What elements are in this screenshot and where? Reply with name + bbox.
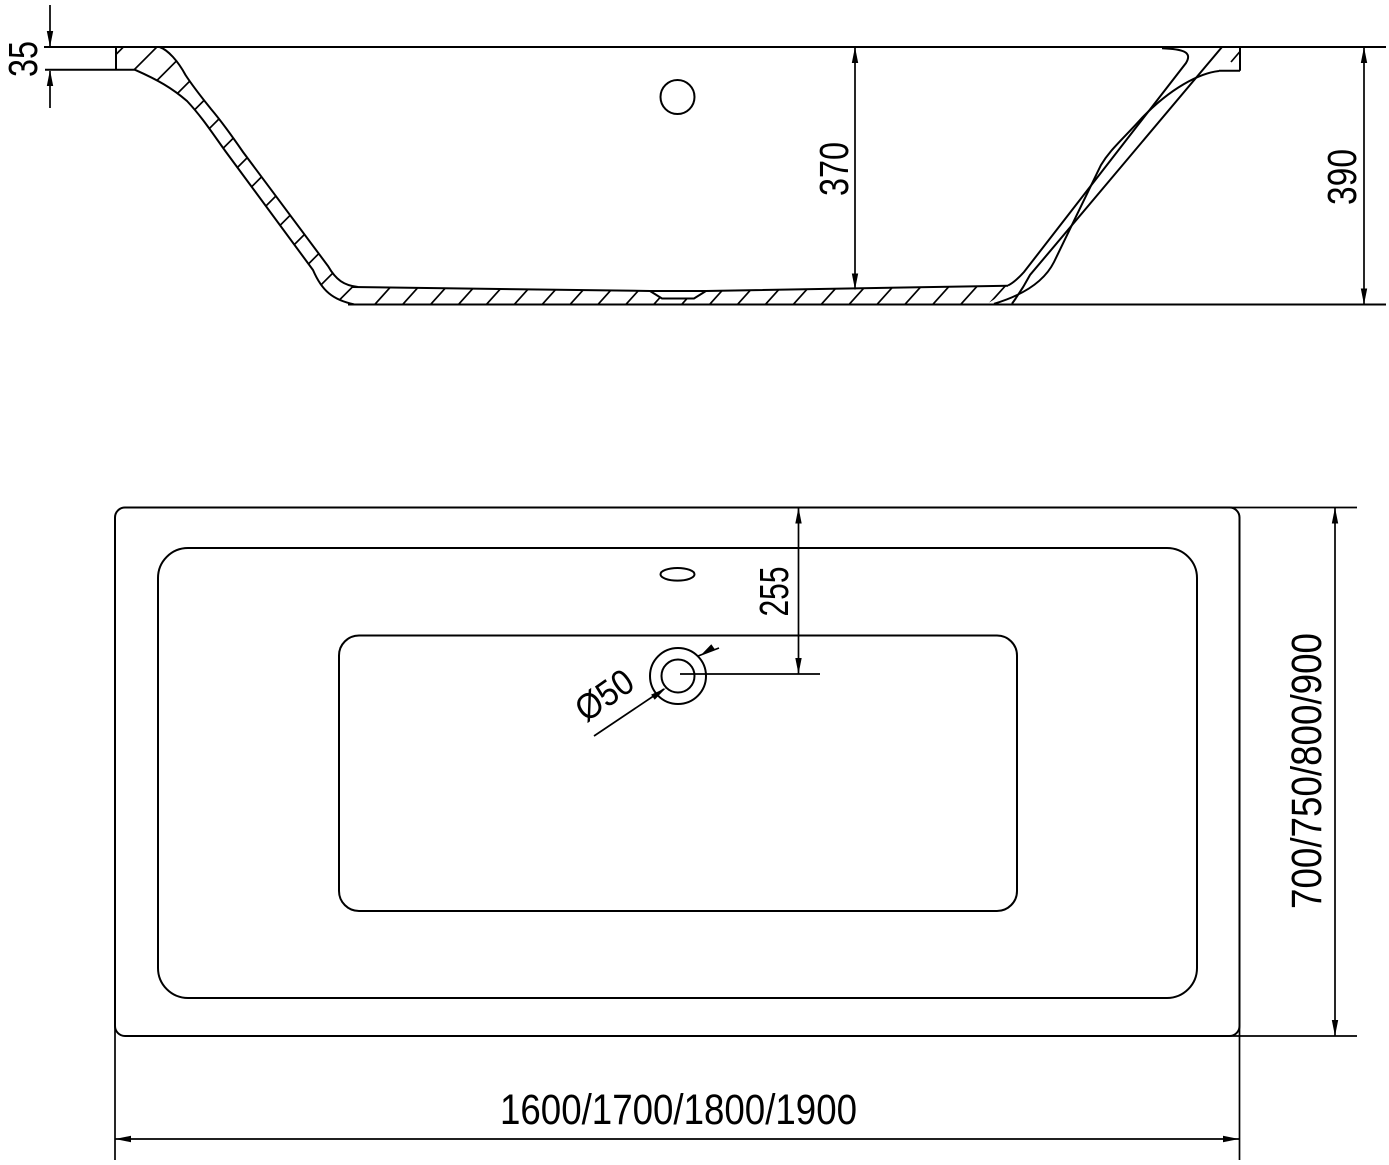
svg-text:35: 35 xyxy=(0,41,46,77)
svg-text:1600/1700/1800/1900: 1600/1700/1800/1900 xyxy=(500,1086,857,1134)
svg-text:Ø50: Ø50 xyxy=(567,660,641,729)
svg-text:255: 255 xyxy=(751,567,797,617)
svg-text:370: 370 xyxy=(811,142,857,196)
svg-text:700/750/800/900: 700/750/800/900 xyxy=(1283,633,1331,909)
svg-text:390: 390 xyxy=(1319,149,1365,205)
